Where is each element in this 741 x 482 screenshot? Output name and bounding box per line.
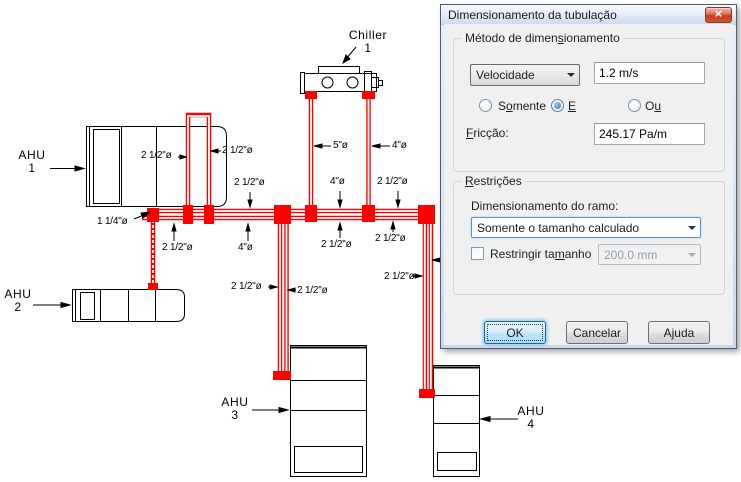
pipe-size-label: 2 1/2"ø [297,286,328,296]
pipe-size-label: 2 1/2"ø [141,151,172,161]
velocity-input[interactable] [594,62,705,84]
pipe-size-label: 4"ø [238,243,253,253]
chiller-label: Chiller1 [344,29,392,55]
size-dropdown-value: 200.0 mm [599,248,684,262]
pipe-size-label: 2 1/2"ø [375,234,406,244]
pipe-size-label: 5"ø [333,141,348,151]
pipe-size-label: 2 1/2"ø [234,178,265,188]
restrict-size-checkbox[interactable] [471,247,484,260]
branch-sizing-label: Dimensionamento do ramo: [471,199,618,213]
friction-input[interactable] [594,123,705,145]
close-icon: × [715,6,723,21]
method-groupbox: Método de dimensionamento [453,38,725,172]
branch-sizing-dropdown[interactable]: Somente o tamanho calculado [471,217,701,238]
ahu2-label: AHU2 [1,288,35,314]
radio-somente-label[interactable]: Somente [498,99,546,113]
close-button[interactable]: × [705,7,732,23]
drawing-canvas[interactable]: Chiller1 AHU1 AHU2 AHU3 AHU4 2 1/2"ø 2 1… [0,0,741,482]
method-dropdown-value: Velocidade [471,68,563,82]
ahu3-shape[interactable] [291,346,367,477]
restrictions-group-title: Restrições [462,174,525,188]
method-group-title: Método de dimensionamento [462,31,623,45]
size-dropdown: 200.0 mm [598,244,701,265]
help-button[interactable]: Ajuda [648,321,710,344]
radio-ou[interactable] [628,99,641,112]
pipe-size-label: 2 1/2"ø [162,243,193,253]
dialog-body: Método de dimensionamento Velocidade Som… [444,24,733,345]
dialog-titlebar[interactable]: Dimensionamento da tubulação [441,5,736,25]
ahu1-shape[interactable] [87,127,227,207]
pipe-size-label: 4"ø [330,177,345,187]
radio-e-label[interactable]: E [568,99,576,113]
pipe-size-label: 2 1/2"ø [321,240,352,250]
pipe-size-label: 2 1/2"ø [377,177,408,187]
chevron-down-icon [684,253,700,257]
dialog-title: Dimensionamento da tubulação [441,8,617,22]
pipe-size-label: 2 1/2"ø [384,272,415,282]
branch-sizing-value: Somente o tamanho calculado [472,221,684,235]
friction-label: Fricção: [466,126,509,140]
radio-e[interactable] [551,99,564,112]
pipe-size-label: 1 1/4"ø [97,217,128,227]
ahu2-shape[interactable] [73,290,185,322]
ahu4-shape[interactable] [434,366,480,477]
radio-somente[interactable] [479,99,492,112]
chevron-down-icon [563,73,579,77]
pipe-size-label: 4"ø [392,141,407,151]
pipe-size-label: 2 1/2"ø [222,146,253,156]
ahu3-label: AHU3 [217,396,253,422]
cancel-button[interactable]: Cancelar [566,321,628,344]
chiller-shape[interactable] [301,67,383,94]
ok-button[interactable]: OK [484,321,546,344]
ahu1-label: AHU1 [12,149,52,175]
chevron-down-icon [684,226,700,230]
method-dropdown[interactable]: Velocidade [470,64,580,86]
restrict-size-label[interactable]: Restringir tamanho [490,247,591,261]
ahu4-label: AHU4 [513,405,549,431]
pipe-sizing-dialog: Dimensionamento da tubulação × Método de… [440,4,737,349]
radio-ou-label[interactable]: Ou [645,99,661,113]
pipe-size-label: 2 1/2"ø [231,282,262,292]
